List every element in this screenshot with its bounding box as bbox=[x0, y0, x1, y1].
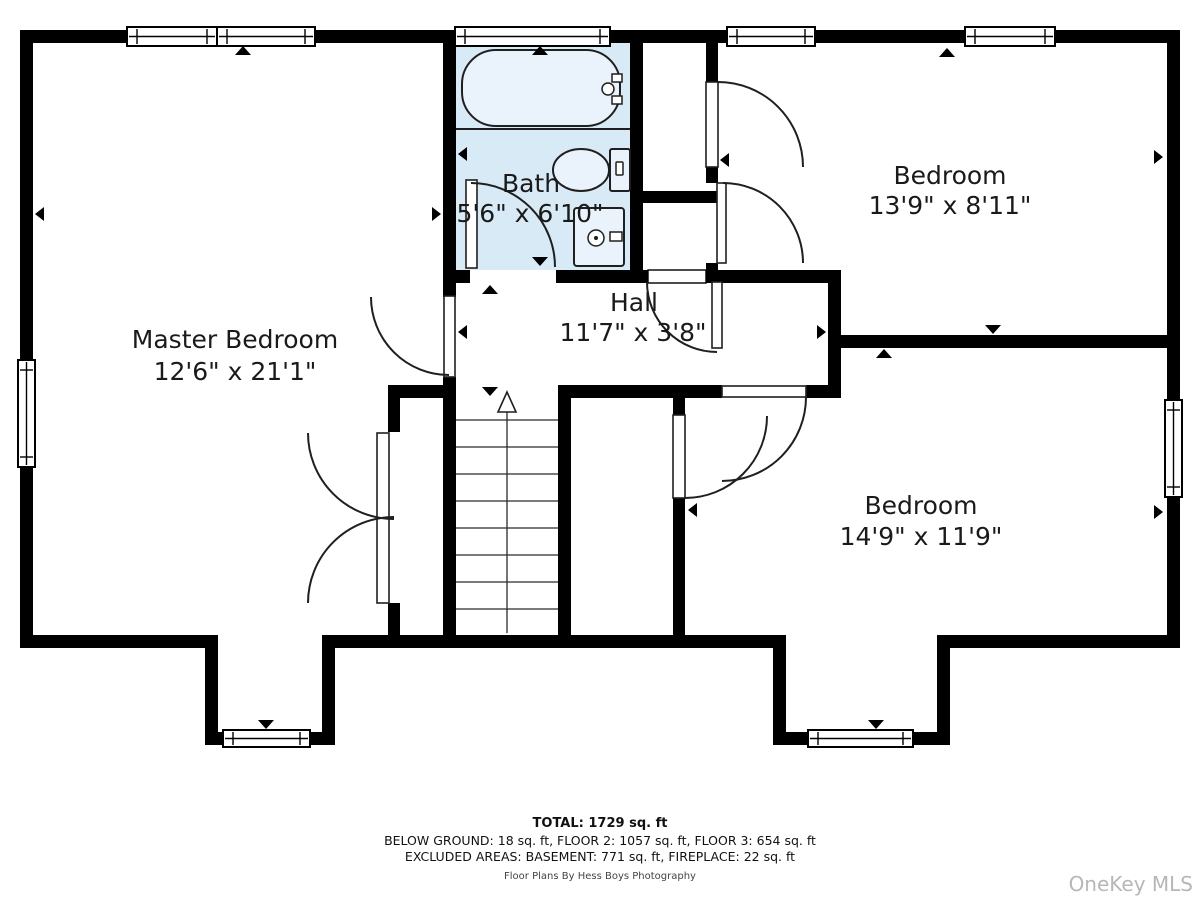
bedroom-door-leaf bbox=[717, 183, 726, 263]
closet-door-leaf bbox=[377, 518, 389, 603]
door-swing-arc bbox=[371, 297, 449, 375]
door-swing-arc bbox=[685, 416, 767, 498]
room-name: Hall bbox=[610, 288, 658, 317]
window bbox=[127, 27, 217, 46]
stairs-up-arrow-icon bbox=[498, 392, 516, 412]
room-name: Master Bedroom bbox=[132, 325, 338, 354]
excluded-areas-text: EXCLUDED AREAS: BASEMENT: 771 sq. ft, FI… bbox=[0, 849, 1200, 864]
vestibule-door-leaf bbox=[712, 282, 722, 348]
toilet bbox=[553, 149, 630, 191]
room-dims: 14'9" x 11'9" bbox=[840, 522, 1003, 551]
floor-plan-canvas: Master Bedroom 12'6" x 21'1" Bath 5'6" x… bbox=[0, 0, 1200, 900]
door-swing-arc bbox=[723, 183, 803, 263]
window bbox=[223, 730, 310, 747]
cased-opening bbox=[648, 270, 706, 283]
window bbox=[455, 27, 610, 46]
window bbox=[727, 27, 815, 46]
floor-areas-text: BELOW GROUND: 18 sq. ft, FLOOR 2: 1057 s… bbox=[0, 833, 1200, 848]
master-door-leaf bbox=[444, 296, 455, 377]
room-dims: 11'7" x 3'8" bbox=[560, 318, 707, 347]
room-label-hall: Hall 11'7" x 3'8" bbox=[560, 288, 707, 347]
room-dims: 13'9" x 8'11" bbox=[869, 191, 1032, 220]
room-name: Bath bbox=[502, 169, 560, 198]
closet-door-leaf bbox=[706, 82, 718, 167]
room-dims: 5'6" x 6'10" bbox=[457, 199, 604, 228]
room-name: Bedroom bbox=[893, 161, 1006, 190]
total-area-text: TOTAL: 1729 sq. ft bbox=[0, 816, 1200, 831]
window bbox=[965, 27, 1055, 46]
room-label-bedroom-top: Bedroom 13'9" x 8'11" bbox=[869, 161, 1032, 220]
room-dims: 12'6" x 21'1" bbox=[154, 357, 317, 386]
room-label-master-bedroom: Master Bedroom 12'6" x 21'1" bbox=[132, 325, 338, 386]
room-label-bedroom-bottom: Bedroom 14'9" x 11'9" bbox=[840, 491, 1003, 551]
floor-plan-page: Master Bedroom 12'6" x 21'1" Bath 5'6" x… bbox=[0, 0, 1200, 900]
credit-text: Floor Plans By Hess Boys Photography bbox=[0, 871, 1200, 882]
window bbox=[217, 27, 315, 46]
bathtub bbox=[462, 50, 622, 126]
window bbox=[808, 730, 913, 747]
staircase bbox=[456, 392, 558, 633]
closet-door-leaf bbox=[673, 415, 685, 498]
bedroom-door-leaf bbox=[722, 386, 806, 397]
door-swing-arc bbox=[718, 82, 803, 167]
closet-door-leaf bbox=[377, 433, 389, 518]
window bbox=[1165, 400, 1182, 497]
room-name: Bedroom bbox=[864, 491, 977, 520]
window bbox=[18, 360, 35, 467]
mls-watermark: OneKey MLS bbox=[1069, 872, 1193, 896]
